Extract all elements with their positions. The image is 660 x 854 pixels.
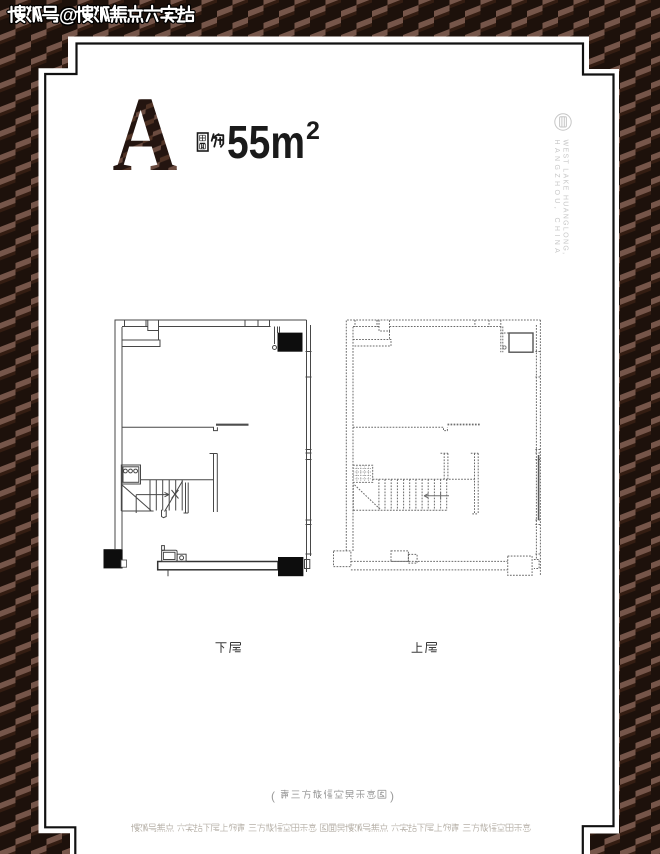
svg-text:): ) bbox=[390, 789, 394, 803]
svg-text:A: A bbox=[113, 76, 178, 194]
svg-text:WEST LAKE HUANGLONG,: WEST LAKE HUANGLONG, bbox=[562, 140, 569, 256]
svg-text:55m: 55m bbox=[227, 116, 305, 168]
svg-text:(: ( bbox=[271, 789, 275, 803]
svg-text:@: @ bbox=[59, 6, 78, 27]
svg-text:2: 2 bbox=[306, 117, 320, 145]
svg-text:HANGZHOU, CHINA: HANGZHOU, CHINA bbox=[553, 140, 560, 257]
